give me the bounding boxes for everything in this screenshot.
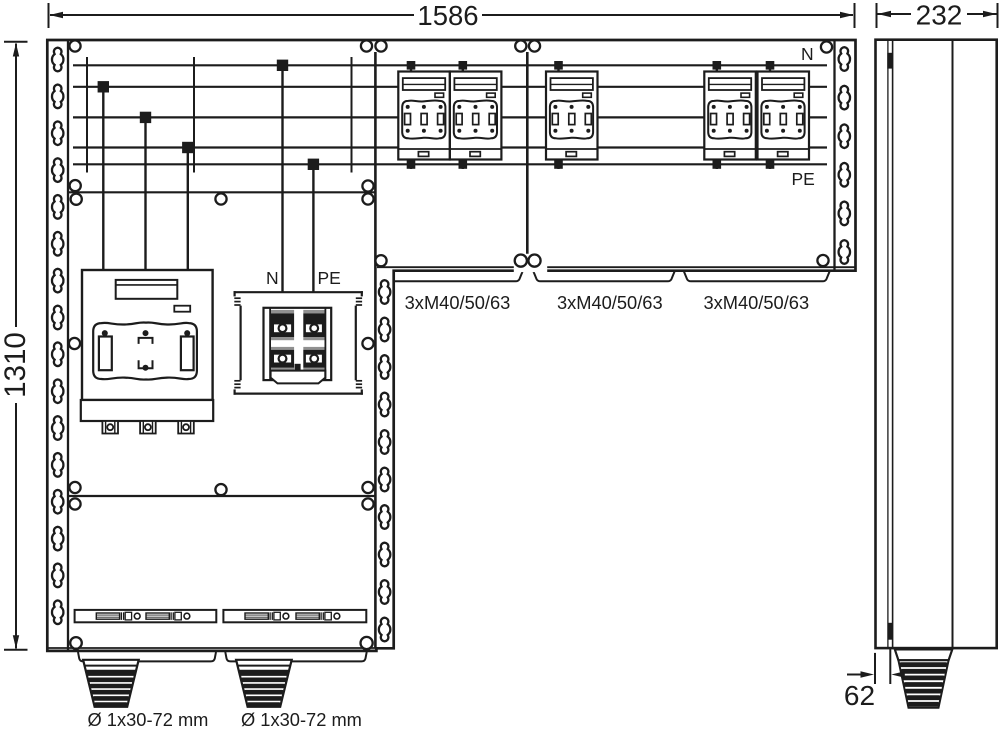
svg-text:PE: PE	[318, 268, 341, 288]
svg-text:Ø 1x30-72 mm: Ø 1x30-72 mm	[88, 709, 209, 730]
svg-text:PE: PE	[792, 169, 815, 189]
svg-text:1586: 1586	[417, 0, 478, 31]
svg-text:Ø 1x30-72 mm: Ø 1x30-72 mm	[241, 709, 362, 730]
svg-text:N: N	[266, 268, 279, 288]
svg-text:3xM40/50/63: 3xM40/50/63	[703, 292, 809, 313]
svg-text:N: N	[801, 44, 814, 64]
svg-text:62: 62	[844, 680, 875, 711]
svg-text:3xM40/50/63: 3xM40/50/63	[557, 292, 663, 313]
svg-text:3xM40/50/63: 3xM40/50/63	[405, 292, 511, 313]
svg-text:232: 232	[916, 0, 963, 30]
svg-text:1310: 1310	[0, 332, 32, 398]
